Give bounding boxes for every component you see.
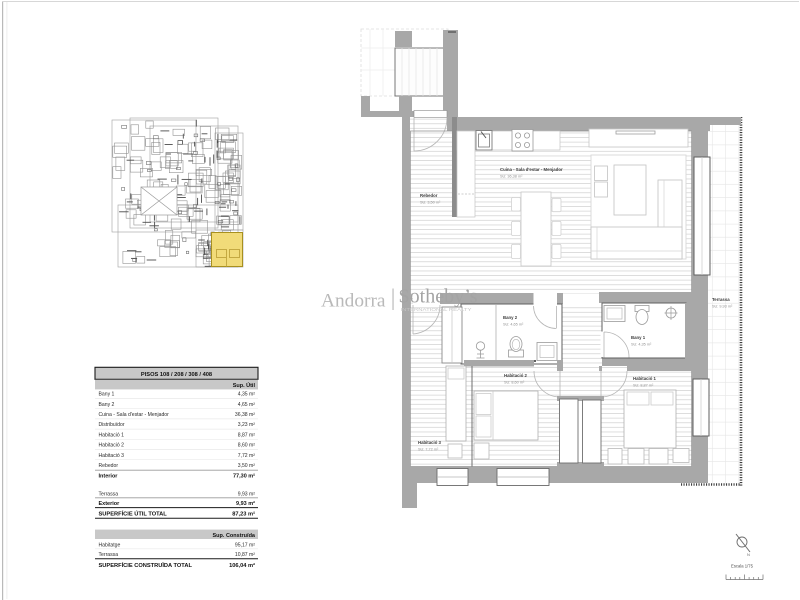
svg-text:Habitació 3: Habitació 3 (99, 453, 125, 459)
svg-text:Bany 1: Bany 1 (631, 335, 646, 340)
svg-text:Sup. Construïda: Sup. Construïda (213, 533, 256, 539)
svg-text:Cuina - Sala d'estar - Menjado: Cuina - Sala d'estar - Menjador (500, 167, 563, 172)
svg-text:Terrassa: Terrassa (712, 297, 730, 302)
svg-text:8,87 m²: 8,87 m² (238, 433, 256, 439)
svg-text:10,87 m²: 10,87 m² (235, 552, 255, 558)
svg-text:87,23 m²: 87,23 m² (232, 511, 255, 518)
svg-text:Rebedor: Rebedor (420, 193, 438, 198)
svg-text:SU: 9,93 m²: SU: 9,93 m² (712, 305, 733, 309)
svg-text:Bany 2: Bany 2 (503, 315, 518, 320)
svg-text:3,23 m²: 3,23 m² (238, 422, 256, 428)
svg-text:Habitatge: Habitatge (99, 542, 121, 548)
svg-text:SU: 7,72 m²: SU: 7,72 m² (418, 448, 439, 452)
svg-text:7,72 m²: 7,72 m² (238, 453, 256, 459)
svg-text:Habitació 2: Habitació 2 (99, 443, 125, 449)
svg-text:Cuina - Sala d'estar - Menjado: Cuina - Sala d'estar - Menjador (99, 412, 170, 418)
svg-text:106,04 m²: 106,04 m² (229, 562, 255, 569)
svg-text:SU: 36,38 m²: SU: 36,38 m² (500, 175, 523, 179)
svg-text:Exterior: Exterior (99, 501, 121, 507)
svg-text:9,93 m²: 9,93 m² (238, 491, 256, 497)
svg-text:SU: 3,50 m²: SU: 3,50 m² (420, 201, 441, 205)
svg-text:77,30 m²: 77,30 m² (233, 473, 255, 480)
svg-text:Bany 2: Bany 2 (99, 402, 115, 408)
svg-text:SUPERFÍCIE ÚTIL TOTAL: SUPERFÍCIE ÚTIL TOTAL (99, 510, 168, 518)
svg-text:Escala 1/75: Escala 1/75 (731, 564, 754, 569)
svg-text:Rebedor: Rebedor (99, 463, 119, 469)
svg-text:SU: 8,60 m²: SU: 8,60 m² (504, 381, 525, 385)
svg-text:Andorra: Andorra (321, 292, 386, 312)
svg-text:Habitació 1: Habitació 1 (99, 433, 125, 439)
svg-text:SU: 4,35 m²: SU: 4,35 m² (631, 343, 652, 347)
svg-text:Habitació 3: Habitació 3 (418, 440, 442, 445)
svg-text:Interior: Interior (99, 474, 119, 480)
svg-text:INTERNATIONAL REALTY: INTERNATIONAL REALTY (401, 307, 473, 313)
svg-text:Sotheby’s: Sotheby’s (399, 287, 478, 308)
svg-text:9,93 m²: 9,93 m² (236, 500, 255, 507)
svg-text:PISOS 108 / 208 / 308 / 408: PISOS 108 / 208 / 308 / 408 (141, 372, 212, 378)
svg-text:Sup. Útil: Sup. Útil (233, 382, 256, 389)
svg-text:SU: 8,87 m²: SU: 8,87 m² (633, 384, 654, 388)
svg-text:Bany 1: Bany 1 (99, 392, 115, 398)
svg-text:Habitació 2: Habitació 2 (504, 373, 528, 378)
svg-text:Terrassa: Terrassa (99, 552, 119, 558)
svg-text:Distribuïdor: Distribuïdor (99, 422, 125, 428)
svg-text:4,65 m²: 4,65 m² (238, 402, 256, 408)
svg-text:Habitació 1: Habitació 1 (633, 376, 657, 381)
svg-text:N: N (747, 552, 750, 557)
svg-text:95,17 m²: 95,17 m² (235, 542, 255, 548)
svg-text:SU: 4,65 m²: SU: 4,65 m² (503, 323, 524, 327)
svg-text:3,50 m²: 3,50 m² (238, 463, 256, 469)
svg-text:8,60 m²: 8,60 m² (238, 443, 256, 449)
svg-text:36,38 m²: 36,38 m² (235, 412, 255, 418)
svg-text:Terrassa: Terrassa (99, 491, 119, 497)
svg-text:4,35 m²: 4,35 m² (238, 392, 256, 398)
svg-text:SUPERFÍCIE CONSTRUÏDA TOTAL: SUPERFÍCIE CONSTRUÏDA TOTAL (99, 561, 193, 569)
